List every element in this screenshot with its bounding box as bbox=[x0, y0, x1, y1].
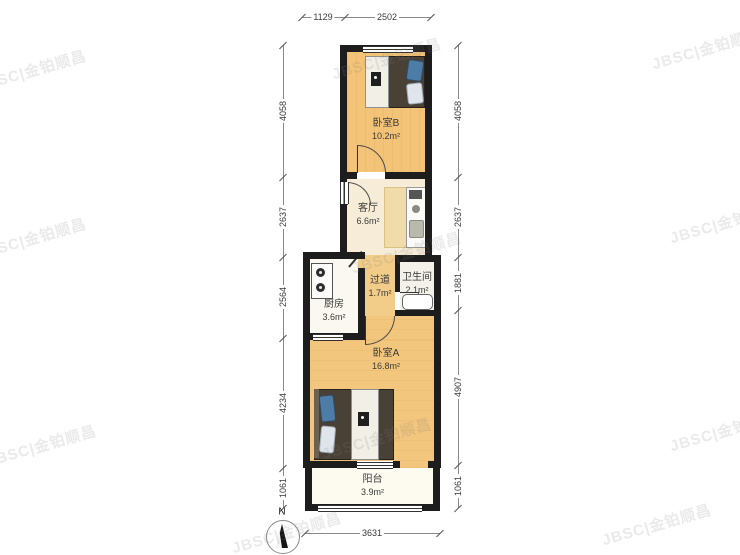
room-label-living: 客厅 6.6m² bbox=[340, 203, 396, 227]
dim-label-left-2: 2637 bbox=[278, 205, 288, 229]
stove-burner-icon bbox=[316, 283, 325, 292]
room-area: 3.9m² bbox=[335, 486, 410, 498]
floorplan-canvas: JBSC|金铂顺昌 JBSC|金铂顺昌 JBSC|金铂顺昌 JBSC|金铂顺昌 … bbox=[0, 0, 740, 555]
bathtub-icon bbox=[402, 294, 433, 310]
balcony-door-opening bbox=[400, 461, 428, 468]
room-area: 6.6m² bbox=[340, 215, 396, 227]
pillow-icon bbox=[406, 82, 424, 105]
room-name: 卧室B bbox=[347, 118, 425, 130]
room-name: 卫生间 bbox=[396, 272, 438, 284]
dim-label-left-5: 1061 bbox=[278, 476, 288, 500]
room-area: 10.2m² bbox=[347, 130, 425, 142]
tv-icon bbox=[409, 190, 422, 199]
room-area: 3.6m² bbox=[310, 311, 358, 323]
dim-label-right-3: 1881 bbox=[453, 271, 463, 295]
balcony-window bbox=[318, 505, 422, 512]
room-area: 2.1m² bbox=[396, 284, 438, 296]
kitchen-doorway bbox=[358, 259, 365, 268]
watermark: JBSC|金铂顺昌 bbox=[667, 197, 740, 248]
room-label-bathroom: 卫生间 2.1m² bbox=[396, 272, 438, 296]
window bbox=[363, 46, 413, 53]
compass-needle-highlight bbox=[276, 528, 282, 548]
dim-label-right-2: 2637 bbox=[453, 205, 463, 229]
watermark: JBSC|金铂顺昌 bbox=[649, 23, 740, 74]
wall bbox=[395, 310, 441, 316]
wall bbox=[303, 252, 310, 468]
room-label-kitchen: 厨房 3.6m² bbox=[310, 299, 358, 323]
room-name: 客厅 bbox=[340, 203, 396, 215]
room-label-balcony: 阳台 3.9m² bbox=[335, 474, 410, 498]
watermark: JBSC|金铂顺昌 bbox=[0, 213, 89, 264]
entry-door-opening bbox=[340, 182, 349, 204]
room-name: 卧室A bbox=[347, 348, 425, 360]
wall bbox=[340, 45, 347, 182]
watermark: JBSC|金铂顺昌 bbox=[667, 405, 740, 456]
wall bbox=[425, 45, 432, 255]
dim-label-right-4: 4907 bbox=[453, 375, 463, 399]
wall bbox=[393, 461, 400, 468]
dim-label-top-1: 1129 bbox=[311, 12, 334, 22]
watermark: JBSC|金铂顺昌 bbox=[0, 420, 99, 471]
wall bbox=[395, 255, 441, 262]
window bbox=[313, 334, 343, 341]
pillow-icon bbox=[406, 59, 425, 82]
dim-label-left-4: 4234 bbox=[278, 391, 288, 415]
compass-north-label: N bbox=[278, 507, 285, 518]
wall bbox=[347, 172, 357, 179]
dim-label-bottom-1: 3631 bbox=[360, 528, 384, 538]
watermark: JBSC|金铂顺昌 bbox=[599, 499, 714, 550]
wall bbox=[385, 172, 425, 179]
pillow-icon bbox=[319, 394, 337, 422]
pillow-icon bbox=[319, 425, 336, 453]
dim-label-top-2: 2502 bbox=[375, 12, 399, 22]
room-label-bedroom-b: 卧室B 10.2m² bbox=[347, 118, 425, 142]
window bbox=[357, 462, 393, 469]
wardrobe-handle-icon bbox=[371, 72, 381, 86]
wardrobe-handle-icon bbox=[358, 412, 369, 426]
room-label-corridor: 过道 1.7m² bbox=[362, 275, 398, 299]
room-area: 16.8m² bbox=[347, 360, 425, 372]
room-name: 阳台 bbox=[335, 474, 410, 486]
dim-label-right-1: 4058 bbox=[453, 99, 463, 123]
room-name: 厨房 bbox=[310, 299, 358, 311]
room-label-bedroom-a: 卧室A 16.8m² bbox=[347, 348, 425, 372]
room-name: 过道 bbox=[362, 275, 398, 287]
decor-icon bbox=[412, 205, 420, 213]
wall bbox=[303, 252, 365, 259]
dim-label-left-1: 4058 bbox=[278, 99, 288, 123]
dim-label-right-5: 1061 bbox=[453, 474, 463, 498]
dim-label-left-3: 2564 bbox=[278, 285, 288, 309]
stove-burner-icon bbox=[316, 268, 325, 277]
watermark: JBSC|金铂顺昌 bbox=[0, 45, 89, 96]
cabinet-icon bbox=[409, 220, 424, 238]
room-area: 1.7m² bbox=[362, 287, 398, 299]
